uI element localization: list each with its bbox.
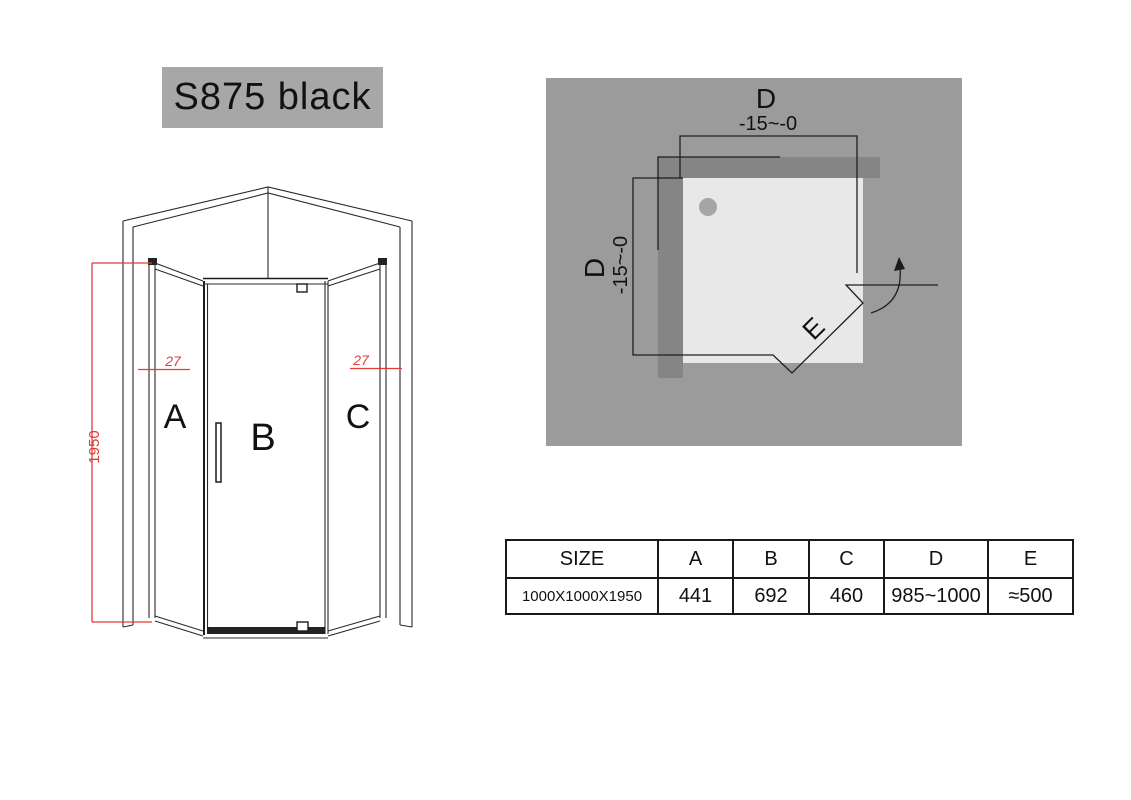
height-dimension: 1950: [86, 263, 152, 622]
panel-b-label: B: [250, 417, 275, 459]
size-table-data-row: 1000X1000X1950 441 692 460 985~1000 ≈500: [506, 578, 1073, 614]
right-gap-dimension-label: 27: [352, 352, 370, 368]
d-top-tolerance: -15~-0: [739, 113, 797, 135]
panel-labels: A B C: [164, 398, 371, 459]
value-b: 692: [733, 578, 809, 614]
top-hinge-clip: [297, 284, 307, 292]
product-title: S875 black: [173, 76, 371, 119]
bottom-guide-clip: [297, 622, 308, 631]
plan-view-drawing: D -15~-0 D -15~-0 E: [540, 70, 990, 460]
size-table: SIZE A B C D E 1000X1000X1950 441 692 46…: [505, 539, 1074, 615]
top-wall-band: [658, 157, 880, 178]
value-d: 985~1000: [884, 578, 988, 614]
gap-dimensions: 27 27: [138, 352, 402, 370]
d-left-tolerance: -15~-0: [610, 236, 632, 294]
door-handle: [216, 423, 221, 482]
left-gap-dimension-label: 27: [164, 353, 182, 369]
header-c: C: [809, 540, 884, 578]
drain: [699, 198, 717, 216]
header-e: E: [988, 540, 1073, 578]
header-a: A: [658, 540, 733, 578]
panel-a-label: A: [164, 398, 187, 436]
product-title-plate: S875 black: [162, 67, 383, 128]
header-size: SIZE: [506, 540, 658, 578]
d-top-label: D: [756, 83, 776, 114]
front-view-drawing: 1950 27 27 A B C: [75, 150, 465, 660]
value-c: 460: [809, 578, 884, 614]
value-e: ≈500: [988, 578, 1073, 614]
size-table-header-row: SIZE A B C D E: [506, 540, 1073, 578]
left-wall-band: [658, 157, 683, 378]
d-left-label: D: [579, 258, 610, 278]
height-dimension-label: 1950: [86, 430, 103, 463]
left-post-cap: [148, 258, 157, 265]
panel-c: [328, 263, 380, 636]
header-b: B: [733, 540, 809, 578]
panel-a: [155, 263, 203, 636]
value-a: 441: [658, 578, 733, 614]
right-post-cap: [378, 258, 387, 265]
value-size: 1000X1000X1950: [506, 578, 658, 614]
header-d: D: [884, 540, 988, 578]
panel-c-label: C: [346, 398, 371, 436]
